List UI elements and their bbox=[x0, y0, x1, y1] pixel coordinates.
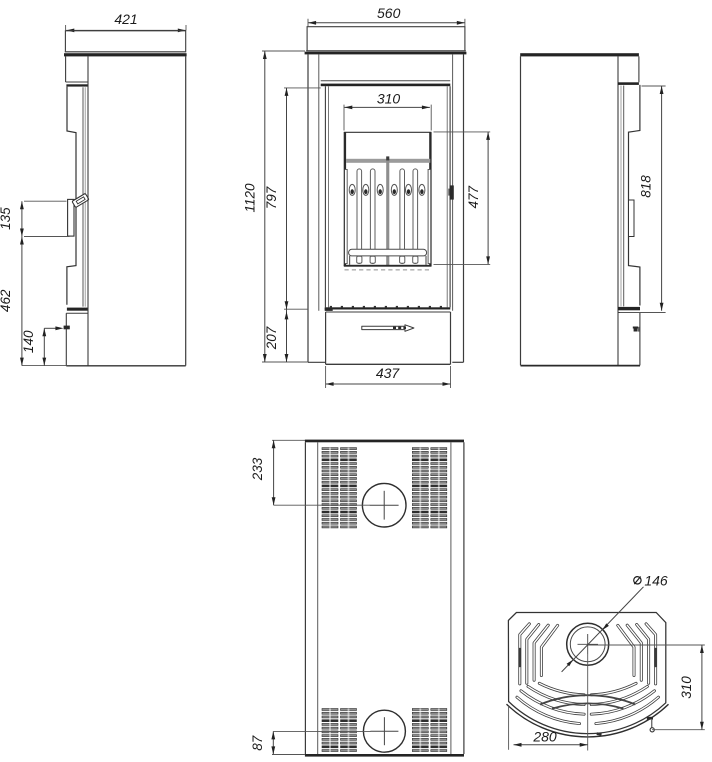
svg-text:560: 560 bbox=[377, 5, 401, 21]
svg-text:140: 140 bbox=[21, 330, 36, 353]
svg-text:797: 797 bbox=[264, 186, 279, 209]
svg-text:135: 135 bbox=[0, 207, 13, 230]
svg-text:233: 233 bbox=[250, 457, 265, 481]
svg-text:87: 87 bbox=[250, 735, 265, 751]
svg-text:207: 207 bbox=[264, 326, 279, 350]
svg-text:1120: 1120 bbox=[242, 183, 257, 213]
svg-text:146: 146 bbox=[644, 572, 668, 588]
svg-text:462: 462 bbox=[0, 289, 13, 312]
svg-text:310: 310 bbox=[377, 90, 401, 106]
svg-text:310: 310 bbox=[679, 676, 694, 699]
svg-text:818: 818 bbox=[639, 175, 654, 198]
svg-text:421: 421 bbox=[114, 11, 137, 27]
svg-text:280: 280 bbox=[532, 729, 557, 745]
svg-text:437: 437 bbox=[376, 365, 401, 381]
svg-text:477: 477 bbox=[466, 185, 481, 208]
